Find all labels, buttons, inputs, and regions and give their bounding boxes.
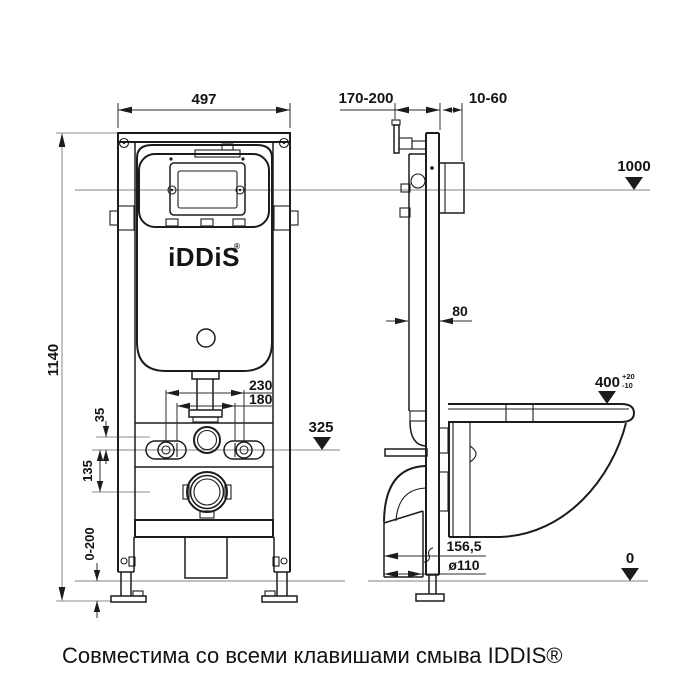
wall-tab-upper [439, 428, 448, 453]
level-marker-0: 0 [621, 550, 639, 581]
svg-text:1140: 1140 [45, 344, 62, 377]
flush-actuator-button [197, 329, 215, 347]
bowl-curve [449, 423, 626, 537]
svg-text:135: 135 [80, 460, 95, 482]
level-marker-325: 325 [308, 419, 333, 450]
leg-left [118, 537, 134, 572]
leg-left-adjustable [121, 572, 131, 596]
svg-text:ø110: ø110 [448, 557, 479, 573]
drain-elbow [384, 466, 426, 577]
side-foot-plate [416, 594, 444, 601]
svg-text:325: 325 [308, 419, 333, 436]
lower-crossbar [135, 520, 273, 537]
dim-wall-offset: 170-200 [338, 90, 440, 130]
svg-text:170-200: 170-200 [338, 90, 393, 107]
svg-text:80: 80 [452, 303, 468, 319]
guide-lines [56, 133, 650, 601]
wall-tab-lower [439, 472, 448, 511]
dim-bowl-height: 400 +20 -10 [595, 372, 635, 404]
drain-outlet [183, 472, 231, 518]
dim-finish-thickness: 10-60 [443, 90, 507, 161]
cistern: iDDiS ® [110, 144, 298, 371]
water-inlet-pipe [392, 120, 426, 153]
frame-top-bar [118, 133, 290, 142]
arrow-right [276, 107, 290, 114]
dim-drain-diameter: ø110 [384, 557, 486, 577]
svg-text:156,5: 156,5 [446, 538, 481, 554]
drain-housing [185, 537, 227, 578]
svg-text:10-60: 10-60 [469, 90, 507, 107]
leg-right [274, 537, 290, 572]
side-view [384, 120, 634, 601]
svg-text:+20: +20 [622, 372, 635, 381]
side-clamp-left [118, 206, 134, 230]
technical-drawing: iDDiS ® [0, 0, 700, 700]
level-triangle [313, 437, 331, 450]
seat-lid [448, 404, 634, 422]
drain-pipe-box [384, 511, 423, 577]
svg-text:35: 35 [92, 408, 107, 422]
svg-text:0-200: 0-200 [82, 527, 97, 560]
svg-text:400: 400 [595, 374, 620, 391]
svg-text:497: 497 [191, 91, 216, 108]
dim-stud-spacing-inner: 180 [177, 391, 273, 441]
dim-profile-depth: 80 [386, 303, 472, 324]
dimensions: 497 1140 230 180 35 [45, 90, 651, 618]
svg-text:-10: -10 [622, 381, 633, 390]
inlet-fitting [194, 427, 220, 453]
svg-text:0: 0 [626, 550, 634, 567]
leg-lock-hole-left [121, 558, 127, 564]
flush-pipe [189, 371, 222, 422]
dim-frame-width: 497 [118, 91, 290, 128]
iddis-logo: iDDiS [168, 242, 240, 272]
caption: Совместима со всеми клавишами смыва IDDI… [62, 643, 563, 668]
support-bracket [385, 449, 427, 456]
mount-boss [470, 446, 476, 462]
dim-leg-adjust: 0-200 [82, 527, 100, 618]
svg-text:1000: 1000 [617, 158, 650, 175]
flush-plate-box [439, 163, 464, 213]
dim-stud-spacing-outer: 230 [166, 377, 273, 441]
side-rail-foot [426, 575, 439, 594]
leg-right-adjustable [277, 572, 287, 596]
fill-valve [411, 174, 425, 188]
dim-frame-height: 1140 [45, 133, 65, 601]
foot-plate-left [111, 596, 146, 602]
front-view: iDDiS ® [110, 133, 298, 602]
mid-crossbar [135, 423, 273, 467]
cistern-profile [400, 154, 427, 446]
logo-registered-mark: ® [234, 242, 240, 251]
svg-text:180: 180 [249, 391, 273, 407]
level-marker-1000: 1000 [617, 158, 650, 190]
drawing-svg: iDDiS ® [0, 0, 700, 700]
dim-studs-to-drain: 135 [80, 450, 103, 492]
side-clamp-right [274, 206, 290, 230]
toilet-bowl [448, 404, 634, 537]
side-rail [416, 133, 444, 601]
leg-lock-hole-right [281, 558, 287, 564]
arrow-left [118, 107, 132, 114]
foot-plate-right [262, 596, 297, 602]
cistern-underside [410, 421, 427, 446]
